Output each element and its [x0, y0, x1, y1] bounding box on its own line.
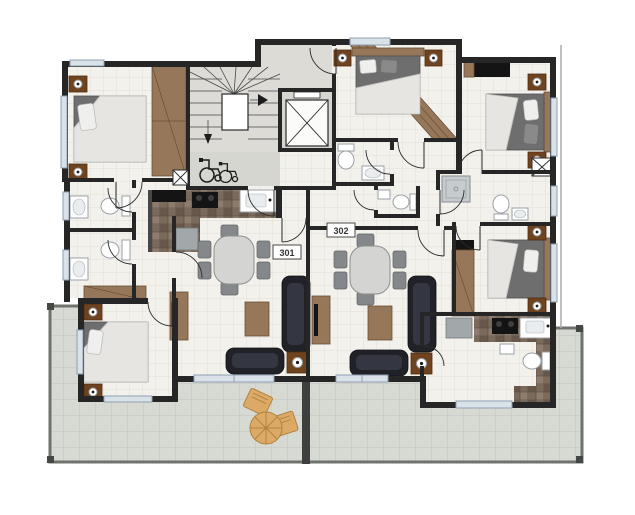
nightstand: [528, 298, 546, 314]
appliance: [446, 318, 472, 338]
fridge: [176, 228, 198, 250]
unit-301-number: 301: [279, 248, 294, 258]
sofa-small: [350, 350, 408, 376]
lobby-floor: [261, 45, 332, 89]
bed: [74, 96, 146, 162]
cooktop: [492, 318, 518, 334]
unit-label-302: 302: [327, 223, 355, 237]
sofa-large: [282, 276, 310, 352]
cooktop: [192, 192, 218, 208]
tv-console: [312, 296, 330, 344]
coffee-table: [245, 302, 269, 336]
nightstand: [528, 224, 546, 240]
unit-302-number: 302: [333, 226, 348, 236]
nightstand: [528, 74, 546, 90]
kitchen-sink: [520, 318, 554, 338]
toilet: [523, 352, 550, 370]
shower: [442, 176, 470, 202]
nightstand: [334, 50, 351, 66]
unit-label-301: 301: [273, 245, 301, 259]
window: [350, 38, 390, 45]
toilet: [493, 195, 509, 220]
terrace-divider-wall: [302, 378, 310, 464]
parapet-post: [47, 456, 54, 463]
window: [104, 396, 152, 402]
kitchen-sink: [240, 190, 276, 212]
dining-table: [214, 236, 254, 284]
window: [551, 98, 557, 156]
bed: [486, 92, 552, 152]
parapet-post: [576, 325, 583, 332]
nightstand: [84, 304, 102, 320]
window: [456, 401, 512, 408]
floor-plan: 301 302: [0, 0, 635, 515]
stair-void: [222, 94, 248, 130]
nightstand: [69, 76, 87, 92]
side-table-lamp: [287, 352, 308, 373]
headboard: [352, 48, 424, 56]
kitchen-cabinet: [152, 190, 186, 202]
sink: [500, 344, 514, 354]
sofa-small: [226, 348, 284, 374]
bed: [84, 322, 148, 382]
elevator-icon: [286, 92, 328, 146]
floor-plan-drawing: 301 302: [0, 0, 635, 515]
window: [61, 96, 67, 168]
sink: [378, 190, 390, 199]
window: [551, 244, 557, 302]
toilet: [393, 194, 416, 210]
window: [77, 330, 83, 374]
coffee-table: [368, 306, 392, 340]
nightstand: [425, 50, 442, 66]
toilet: [338, 144, 354, 169]
bed: [488, 238, 552, 300]
parapet-post: [47, 303, 54, 310]
window: [551, 186, 557, 216]
dining-table: [350, 246, 390, 294]
window: [70, 60, 104, 66]
bed: [352, 48, 424, 114]
terrace-table: [250, 412, 282, 444]
window: [63, 192, 69, 220]
window: [63, 250, 69, 280]
x-duct-icon: [173, 170, 188, 185]
parapet-post: [576, 456, 583, 463]
nightstand: [69, 164, 87, 180]
